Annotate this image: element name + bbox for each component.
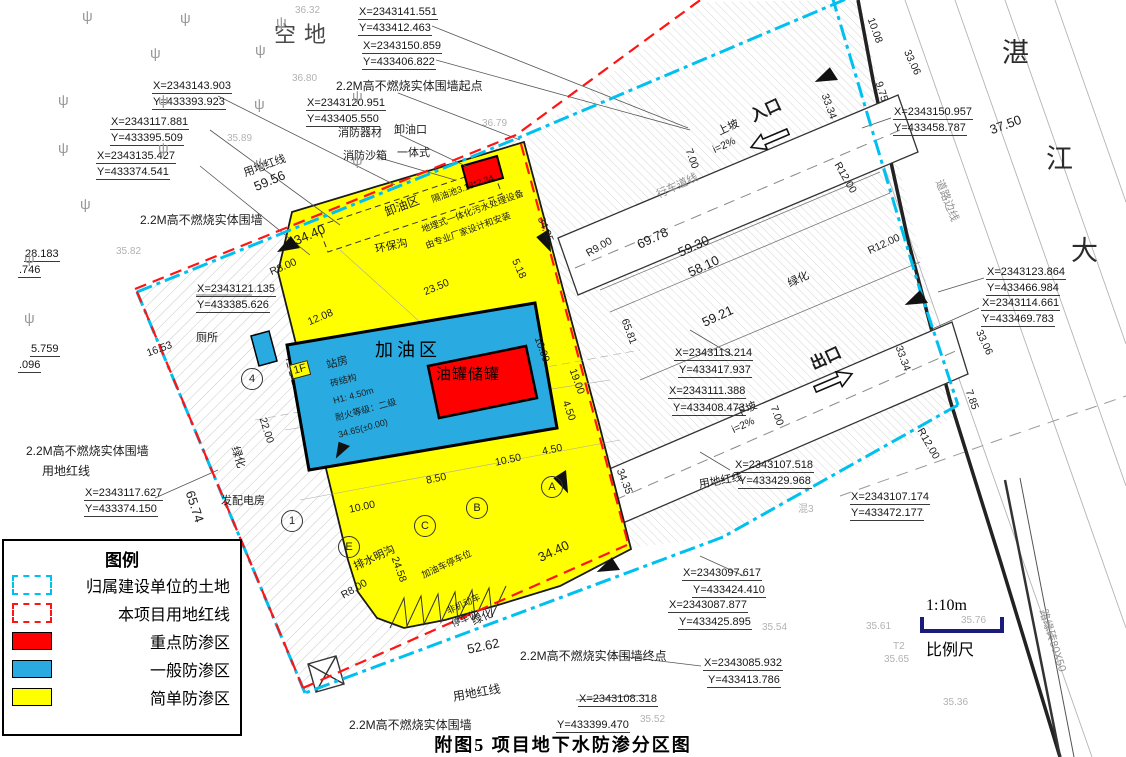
legend-item-label: 归属建设单位的土地 (52, 573, 230, 597)
scale-bar: 1:10m 比例尺 (920, 597, 1020, 660)
legend-item: 简单防渗区 (4, 683, 240, 711)
legend-item: 归属建设单位的土地 (4, 571, 240, 599)
scale-label: 比例尺 (926, 636, 1020, 660)
scale-bracket-icon (920, 617, 1004, 633)
legend-swatch-yellow-fill (12, 688, 52, 706)
legend-swatch-red-fill (12, 632, 52, 650)
site-plan-page: X=2343141.551Y=433412.463X=2343150.859Y=… (0, 0, 1126, 757)
legend-item: 一般防渗区 (4, 655, 240, 683)
legend-item: 重点防渗区 (4, 627, 240, 655)
legend-item-label: 一般防渗区 (52, 657, 230, 681)
legend-item-label: 重点防渗区 (52, 629, 230, 653)
legend-swatch-blue-fill (12, 660, 52, 678)
legend-rows: 归属建设单位的土地本项目用地红线重点防渗区一般防渗区简单防渗区 (4, 571, 240, 711)
legend-item-label: 简单防渗区 (52, 685, 230, 709)
legend-item: 本项目用地红线 (4, 599, 240, 627)
legend-swatch-cyan-dashed (12, 575, 52, 595)
legend-item-label: 本项目用地红线 (52, 601, 230, 625)
scale-ratio: 1:10m (926, 597, 1020, 615)
figure-title: 附图5 项目地下水防渗分区图 (0, 731, 1126, 757)
legend: 图例 归属建设单位的土地本项目用地红线重点防渗区一般防渗区简单防渗区 (2, 539, 242, 736)
legend-title: 图例 (4, 546, 240, 571)
legend-swatch-red-dashed (12, 603, 52, 623)
